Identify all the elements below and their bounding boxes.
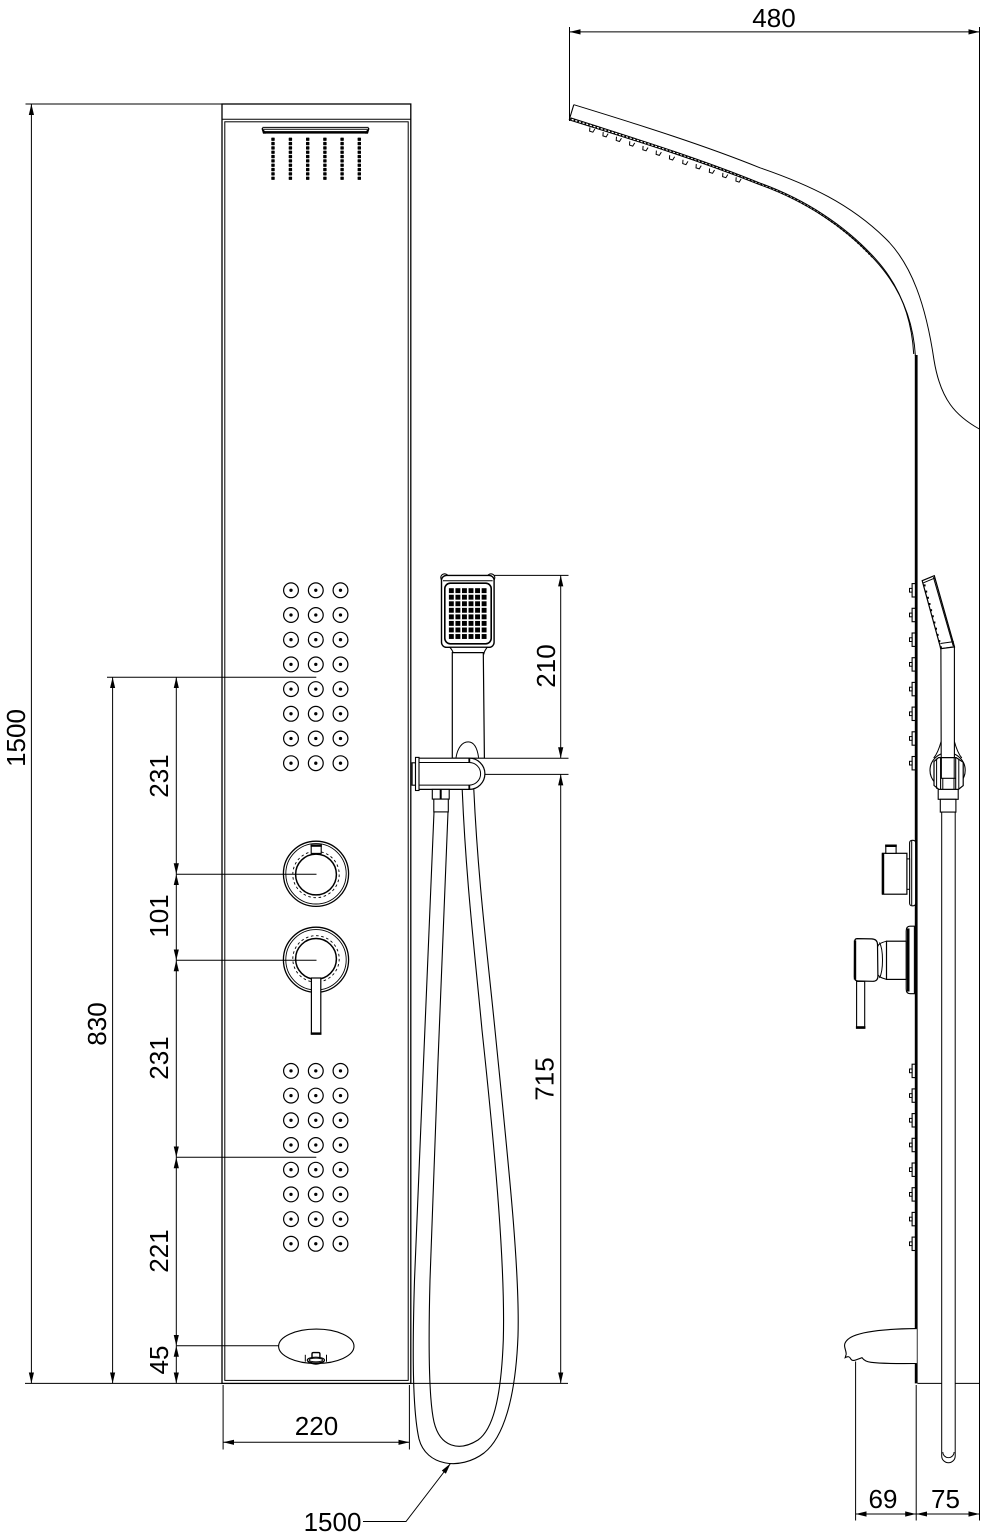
svg-text:715: 715	[530, 1057, 560, 1100]
svg-text:480: 480	[752, 3, 795, 33]
svg-text:75: 75	[931, 1484, 960, 1514]
svg-text:210: 210	[531, 644, 561, 687]
svg-text:231: 231	[144, 754, 174, 797]
svg-text:69: 69	[869, 1484, 898, 1514]
svg-text:45: 45	[144, 1346, 174, 1375]
svg-text:220: 220	[295, 1411, 338, 1441]
svg-text:221: 221	[144, 1229, 174, 1272]
svg-text:1500: 1500	[1, 709, 31, 767]
svg-text:101: 101	[144, 894, 174, 937]
svg-text:231: 231	[144, 1036, 174, 1079]
svg-text:1500: 1500	[304, 1507, 362, 1537]
svg-text:830: 830	[82, 1002, 112, 1045]
